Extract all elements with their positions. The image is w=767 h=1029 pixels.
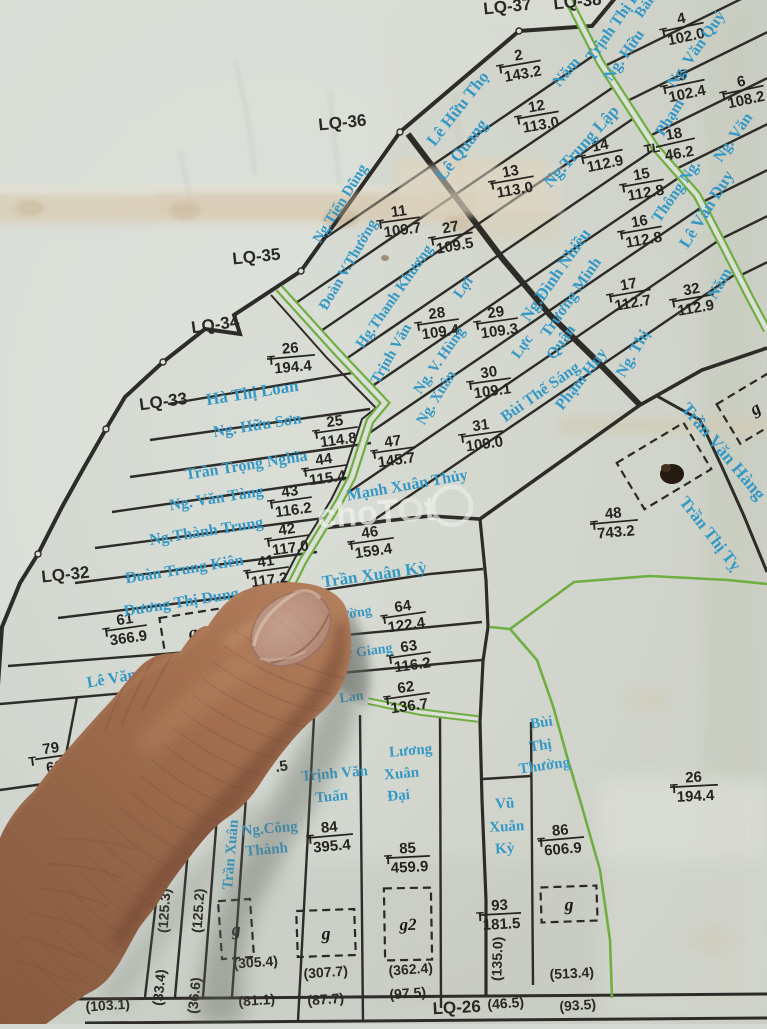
svg-text:28: 28 — [427, 304, 446, 323]
svg-text:395.4: 395.4 — [312, 836, 352, 856]
svg-text:g: g — [320, 923, 331, 943]
svg-text:93: 93 — [491, 897, 509, 915]
svg-text:30: 30 — [479, 363, 498, 382]
svg-text:Đại: Đại — [387, 787, 411, 805]
svg-text:(513.4): (513.4) — [549, 964, 594, 982]
svg-text:Xuân: Xuân — [489, 818, 525, 836]
svg-text:Thị: Thị — [528, 737, 553, 756]
svg-text:(81.1): (81.1) — [238, 991, 276, 1010]
svg-text:42: 42 — [277, 520, 296, 539]
svg-text:48: 48 — [604, 504, 622, 522]
svg-text:459.9: 459.9 — [390, 858, 428, 877]
svg-text:47: 47 — [383, 432, 402, 451]
svg-text:79: 79 — [41, 739, 60, 758]
svg-text:11: 11 — [390, 202, 408, 221]
svg-text:(135.0): (135.0) — [488, 936, 506, 981]
svg-text:29: 29 — [486, 303, 505, 322]
svg-text:41: 41 — [256, 552, 275, 571]
svg-text:Xuân: Xuân — [384, 764, 421, 783]
svg-text:85: 85 — [399, 840, 417, 858]
svg-text:86: 86 — [551, 821, 569, 839]
svg-text:(93.5): (93.5) — [559, 996, 597, 1015]
svg-text:g: g — [563, 894, 574, 914]
svg-text:26: 26 — [685, 769, 703, 787]
svg-text:Vũ: Vũ — [495, 796, 515, 813]
svg-text:181.5: 181.5 — [482, 915, 520, 934]
svg-text:62: 62 — [396, 678, 415, 697]
svg-text:44: 44 — [314, 450, 334, 469]
svg-text:743.2: 743.2 — [596, 522, 635, 542]
svg-text:46: 46 — [360, 523, 379, 542]
svg-text:194.4: 194.4 — [273, 357, 313, 377]
svg-text:(362.4): (362.4) — [388, 959, 433, 978]
svg-text:Bùi: Bùi — [529, 714, 554, 733]
svg-text:43: 43 — [280, 482, 299, 501]
svg-text:194.4: 194.4 — [676, 787, 715, 806]
svg-text:84: 84 — [320, 818, 339, 836]
svg-text:LQ-26: LQ-26 — [432, 997, 481, 1018]
svg-text:(46.5): (46.5) — [487, 994, 525, 1013]
svg-text:(307.7): (307.7) — [303, 962, 348, 981]
svg-text:Kỳ: Kỳ — [495, 840, 515, 857]
svg-text:g2: g2 — [398, 915, 417, 934]
svg-text:25: 25 — [325, 412, 344, 431]
svg-text:(87.7): (87.7) — [307, 990, 345, 1009]
svg-text:TL: TL — [643, 140, 661, 158]
svg-text:31: 31 — [471, 416, 490, 435]
svg-text:64: 64 — [393, 597, 413, 616]
svg-text:63: 63 — [399, 637, 418, 656]
svg-text:(97.5): (97.5) — [389, 984, 427, 1003]
svg-text:26: 26 — [281, 339, 299, 357]
svg-text:606.9: 606.9 — [543, 839, 582, 859]
